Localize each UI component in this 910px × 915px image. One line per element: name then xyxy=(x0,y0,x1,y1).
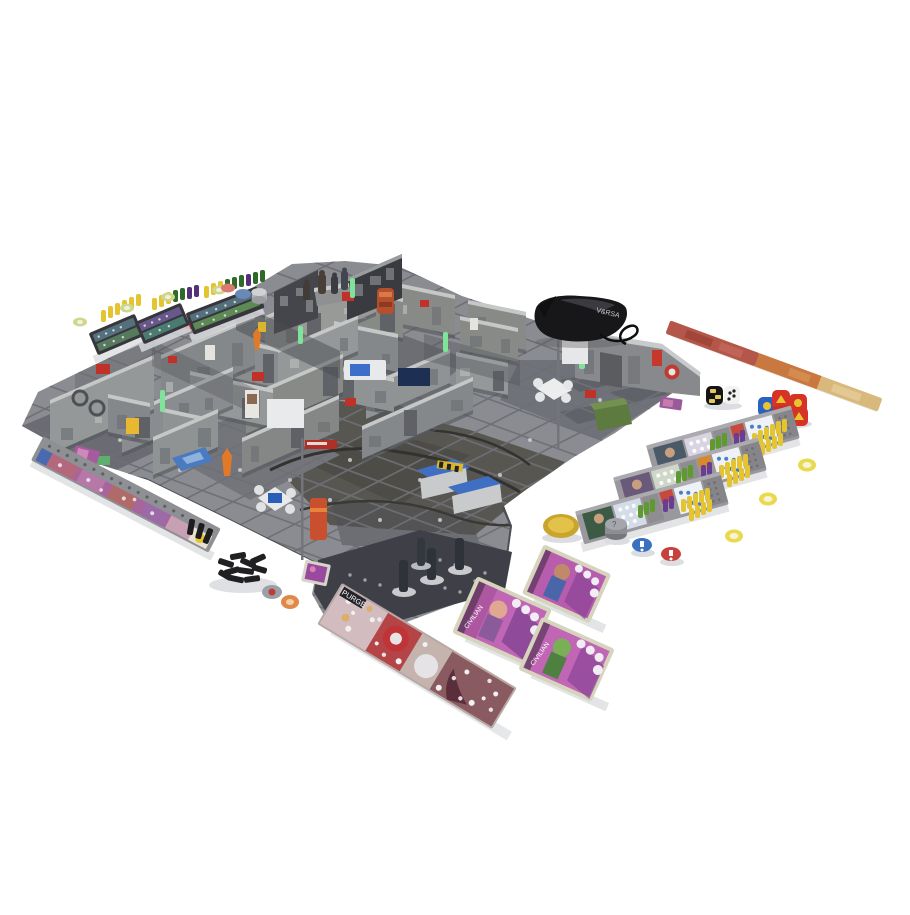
svg-text:?: ? xyxy=(612,520,617,529)
